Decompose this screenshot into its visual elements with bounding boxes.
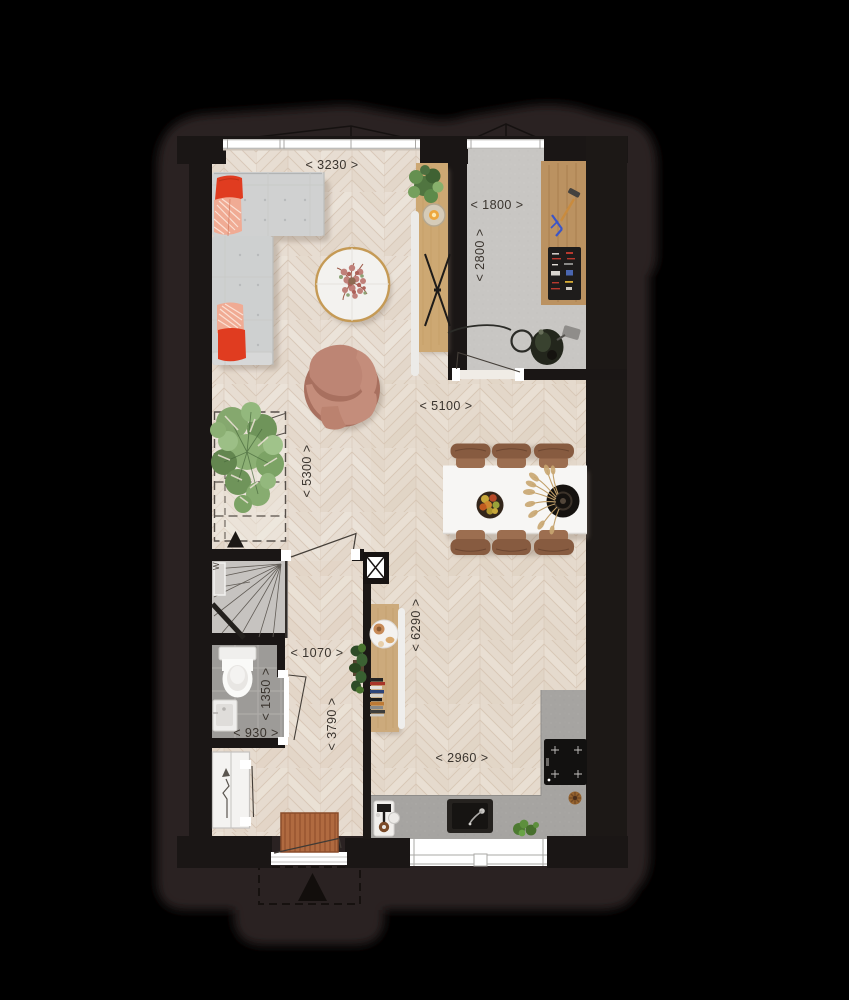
svg-text:W: W: [212, 562, 221, 570]
svg-text:< 930 >: < 930 >: [233, 726, 279, 740]
svg-text:< 6290 >: < 6290 >: [409, 599, 423, 652]
svg-text:< 3230 >: < 3230 >: [306, 158, 359, 172]
svg-text:< 5300 >: < 5300 >: [300, 445, 314, 498]
svg-text:< 2960 >: < 2960 >: [436, 751, 489, 765]
svg-text:< 1350 >: < 1350 >: [259, 668, 273, 721]
svg-text:< 5100 >: < 5100 >: [420, 399, 473, 413]
svg-text:< 2800 >: < 2800 >: [473, 229, 487, 282]
svg-text:< 1800 >: < 1800 >: [471, 198, 524, 212]
svg-text:< 3790 >: < 3790 >: [325, 698, 339, 751]
svg-text:< 1070 >: < 1070 >: [291, 646, 344, 660]
